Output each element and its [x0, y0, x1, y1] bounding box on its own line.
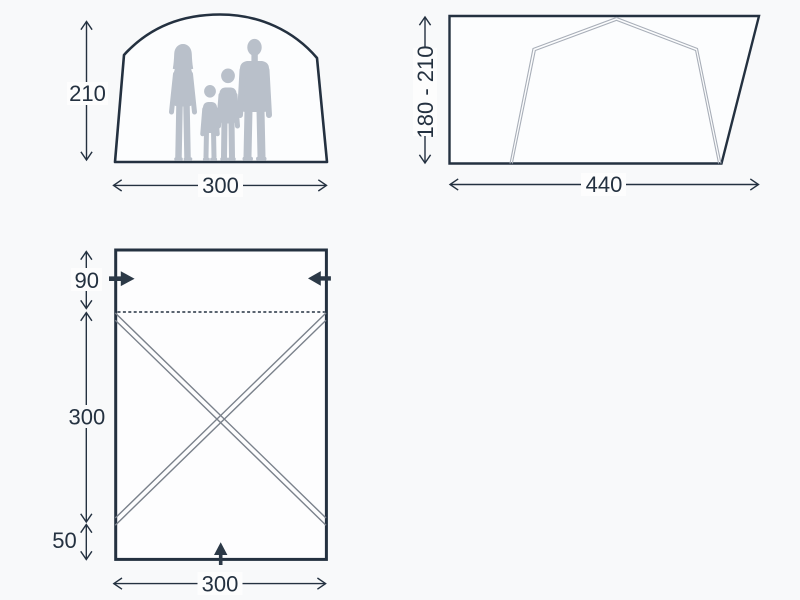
- svg-text:90: 90: [75, 268, 99, 293]
- svg-text:50: 50: [52, 528, 76, 553]
- svg-text:210: 210: [69, 81, 106, 106]
- svg-text:300: 300: [202, 572, 239, 597]
- svg-text:300: 300: [69, 405, 106, 430]
- svg-text:180 - 210: 180 - 210: [413, 46, 438, 139]
- svg-text:440: 440: [586, 172, 623, 197]
- svg-text:300: 300: [202, 173, 239, 198]
